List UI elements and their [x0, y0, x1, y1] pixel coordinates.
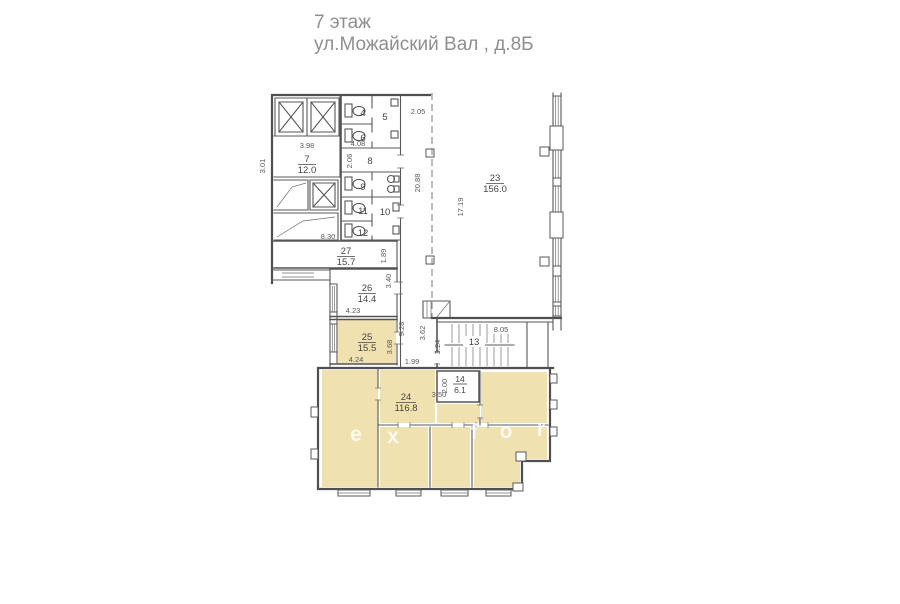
- room-24-number: 24: [401, 392, 412, 403]
- dim-stair-left: 3.62: [418, 326, 427, 341]
- watermark-letter: o: [500, 420, 513, 443]
- room-27-area: 15.7: [337, 257, 356, 268]
- dim-room14-width: 3.50: [432, 390, 447, 399]
- watermark-letter: f: [471, 421, 479, 444]
- dim-room27-width: 8.30: [321, 232, 336, 241]
- elevator-shaft-1: [275, 98, 339, 136]
- room-8-number: 8: [367, 156, 372, 167]
- dim-hall-gap: 1.99: [405, 357, 420, 366]
- scanned-floor-plan-page: 7 этаж ул.Можайский Вал , д.8Б: [0, 0, 900, 604]
- room-7-number: 7: [304, 154, 309, 165]
- vent-shaft: [423, 301, 450, 318]
- room-23-number: 23: [490, 173, 501, 184]
- elevator-shaft-3: [310, 180, 338, 210]
- dim-room25-width: 4.24: [349, 355, 364, 364]
- dim-room23-length: 17.19: [456, 198, 465, 217]
- room-12-number: 12: [358, 228, 369, 239]
- wall-pier: [550, 212, 563, 238]
- room-27-number: 27: [341, 246, 352, 257]
- dim-wc-width: 4.08: [351, 139, 366, 148]
- dim-corridor-top: 2.05: [411, 107, 426, 116]
- room-5-number: 5: [382, 112, 387, 123]
- room-10-number: 10: [380, 207, 391, 218]
- dim-stair-width: 8.05: [494, 325, 509, 334]
- watermark-letter: e: [350, 423, 362, 446]
- room-23-area: 156.0: [483, 184, 507, 195]
- room-13-number: 13: [469, 337, 480, 348]
- room-9-number: 9: [360, 182, 365, 193]
- dim-corridor-length: 20.88: [413, 174, 422, 193]
- watermark-letter: r: [537, 418, 545, 441]
- column-marker: [540, 147, 549, 156]
- room-26-area: 14.4: [358, 294, 377, 305]
- window: [338, 490, 511, 496]
- room-24-area: 116.8: [394, 403, 417, 414]
- wall-pier: [550, 126, 563, 150]
- room-7-area: 12.0: [298, 165, 317, 176]
- room-25-area: 15.5: [358, 343, 377, 354]
- column-marker: [426, 149, 434, 157]
- column-marker: [540, 257, 549, 266]
- room-14-area: 6.1: [454, 385, 466, 395]
- room-25-number: 25: [362, 332, 373, 343]
- floor-plan-drawing: 7 12.0 4 5 6 8 9 10 11 12 13 27 15.7 26 …: [0, 0, 900, 604]
- dim-room26-width: 4.23: [346, 306, 361, 315]
- dim-corridor-low: 9.28: [397, 322, 406, 337]
- dim-room8-depth: 2.06: [345, 154, 354, 169]
- ramp-room-upper: [274, 180, 308, 210]
- dim-room27-right: 1.89: [379, 249, 388, 264]
- elevator-shaft-2: [311, 102, 335, 132]
- dim-room25-right: 3.68: [385, 340, 394, 355]
- room-14-number: 14: [455, 374, 465, 384]
- room-26-number: 26: [362, 283, 373, 294]
- room-4-number: 4: [360, 108, 365, 119]
- dim-core-left: 3.01: [258, 159, 267, 174]
- dim-stair-depth: 3.24: [433, 340, 442, 355]
- room-11-number: 11: [358, 206, 368, 217]
- balcony-ledge: [272, 270, 330, 281]
- watermark-letter: x: [387, 425, 399, 448]
- room-23: [432, 93, 563, 330]
- column-marker: [426, 256, 434, 264]
- dim-core-width: 3.98: [300, 141, 315, 150]
- dim-room26-right: 3.40: [384, 274, 393, 289]
